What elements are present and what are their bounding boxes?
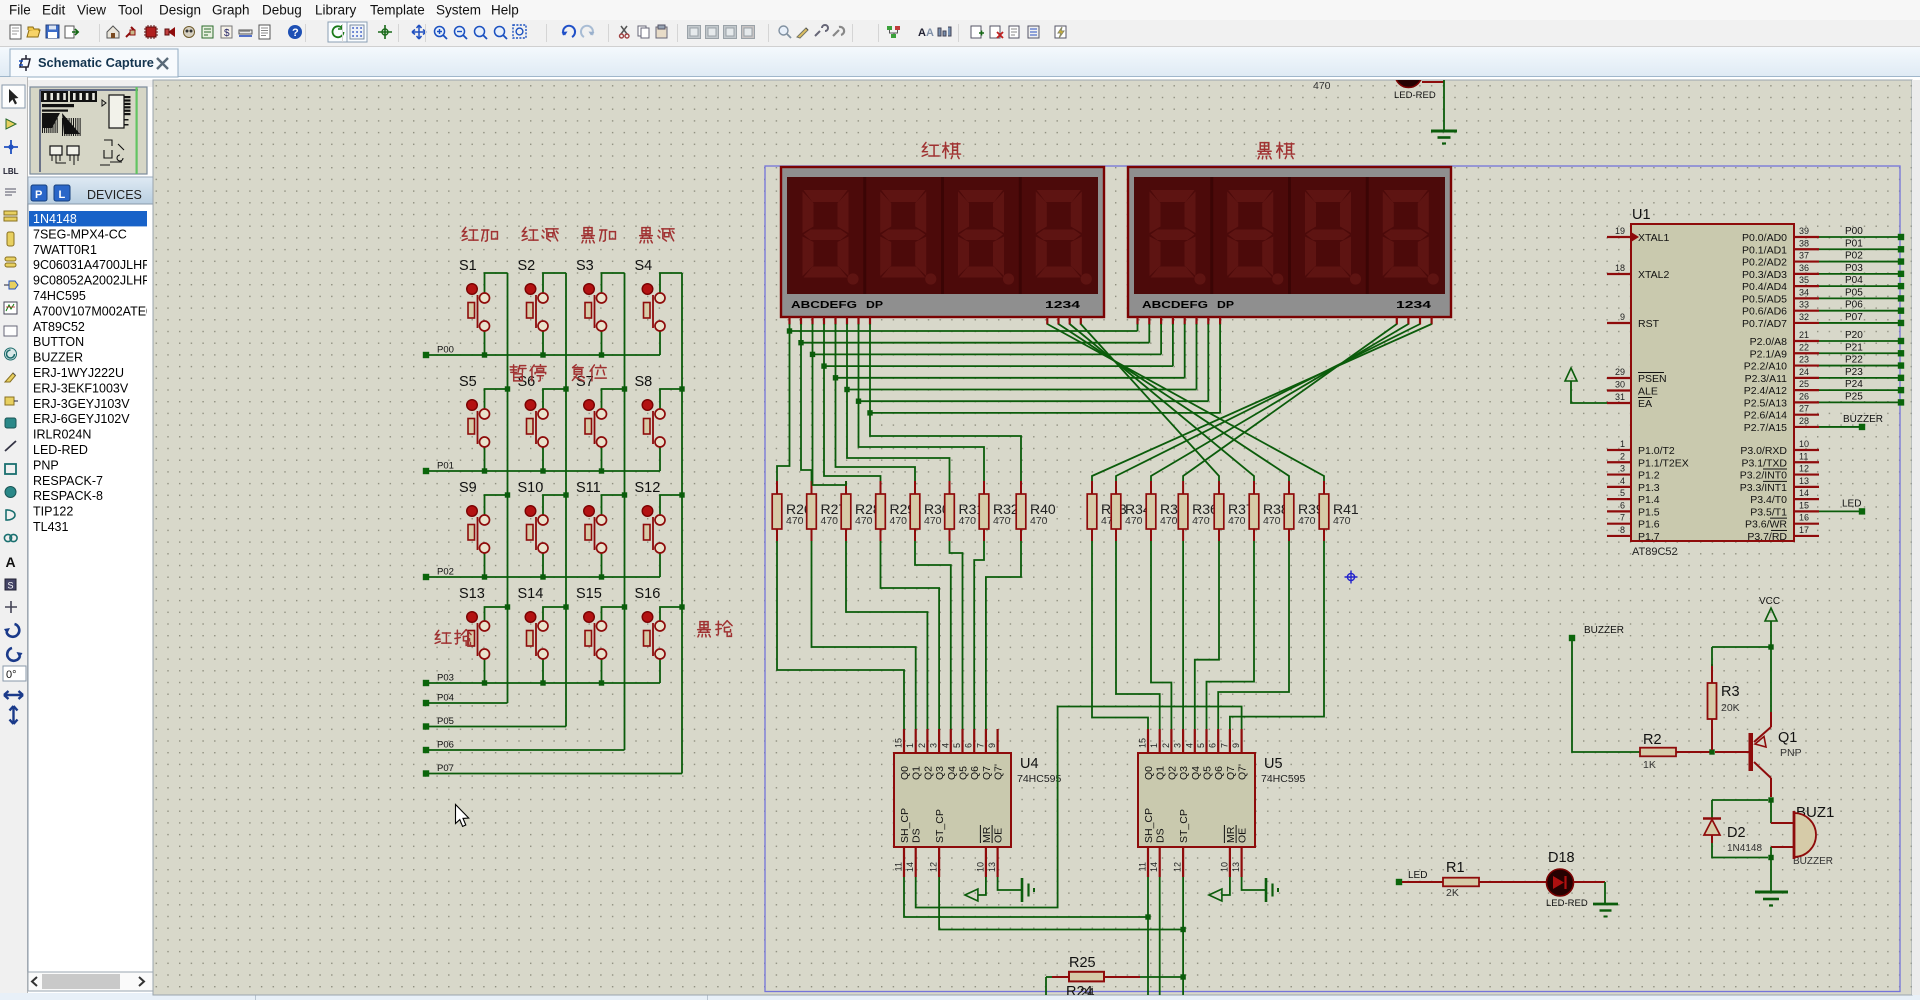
svg-text:14: 14 xyxy=(905,862,915,872)
svg-text:470: 470 xyxy=(1030,515,1048,527)
svg-text:9: 9 xyxy=(987,743,997,748)
svg-text:TIP122: TIP122 xyxy=(33,505,73,519)
svg-text:31: 31 xyxy=(1615,392,1625,402)
svg-text:20K: 20K xyxy=(1721,702,1740,714)
svg-text:P2.4/A12: P2.4/A12 xyxy=(1744,385,1787,397)
svg-text:8: 8 xyxy=(1620,525,1625,535)
svg-text:470: 470 xyxy=(1298,515,1316,527)
svg-text:OE: OE xyxy=(1237,828,1249,843)
svg-text:18: 18 xyxy=(1615,263,1625,273)
svg-text:S12: S12 xyxy=(635,480,661,496)
svg-text:74HC595: 74HC595 xyxy=(1017,773,1062,785)
svg-text:12: 12 xyxy=(1173,862,1183,872)
svg-text:S3: S3 xyxy=(576,258,594,274)
svg-text:Q1: Q1 xyxy=(1778,730,1797,746)
svg-text:13: 13 xyxy=(1231,862,1241,872)
svg-text:11: 11 xyxy=(894,862,904,871)
svg-text:DP: DP xyxy=(866,300,883,311)
svg-text:S5: S5 xyxy=(459,374,477,390)
svg-text:A700V107M002ATE028: A700V107M002ATE028 xyxy=(33,304,167,318)
svg-text:IRLR024N: IRLR024N xyxy=(33,428,91,442)
svg-text:P04: P04 xyxy=(437,693,454,704)
svg-text:1: 1 xyxy=(1149,743,1159,748)
svg-text:P02: P02 xyxy=(437,567,454,578)
svg-text:15: 15 xyxy=(1799,500,1809,510)
svg-text:P3.3/INT1: P3.3/INT1 xyxy=(1740,482,1787,494)
svg-text:BUZZER: BUZZER xyxy=(1843,414,1883,425)
svg-text:Schematic Capture: Schematic Capture xyxy=(38,55,154,70)
svg-text:ST_CP: ST_CP xyxy=(934,809,946,843)
svg-text:A: A xyxy=(926,27,934,39)
svg-text:1234: 1234 xyxy=(1045,300,1081,311)
svg-text:BUZZER: BUZZER xyxy=(1793,856,1833,867)
svg-text:AT89C52: AT89C52 xyxy=(33,320,85,334)
svg-text:Tool: Tool xyxy=(118,3,143,18)
svg-text:38: 38 xyxy=(1799,238,1809,248)
svg-text:SH_CP: SH_CP xyxy=(1143,808,1155,843)
svg-text:1: 1 xyxy=(905,743,915,748)
svg-text:33: 33 xyxy=(1799,300,1809,310)
svg-text:Q7: Q7 xyxy=(981,766,993,780)
svg-text:Q4: Q4 xyxy=(1190,766,1202,780)
svg-text:LED-RED: LED-RED xyxy=(1394,90,1436,101)
svg-text:S15: S15 xyxy=(576,586,602,602)
svg-text:P0.7/AD7: P0.7/AD7 xyxy=(1742,318,1787,330)
svg-text:P24: P24 xyxy=(1845,379,1863,390)
svg-text:MR: MR xyxy=(981,826,993,843)
svg-text:OE: OE xyxy=(993,828,1005,843)
svg-text:2K: 2K xyxy=(1446,887,1459,899)
svg-text:Q7': Q7' xyxy=(993,764,1005,780)
svg-text:Design: Design xyxy=(159,3,201,18)
svg-text:S11: S11 xyxy=(576,480,601,496)
svg-text:6: 6 xyxy=(1208,743,1218,748)
svg-text:470: 470 xyxy=(1125,515,1143,527)
svg-text:P01: P01 xyxy=(437,461,454,472)
svg-text:P3.6/WR: P3.6/WR xyxy=(1745,519,1787,531)
svg-text:AT89C52: AT89C52 xyxy=(1632,546,1678,558)
svg-text:11: 11 xyxy=(1138,862,1148,871)
svg-text:P0.2/AD2: P0.2/AD2 xyxy=(1742,257,1787,269)
svg-text:P06: P06 xyxy=(437,740,454,751)
svg-text:LED-RED: LED-RED xyxy=(33,443,88,457)
svg-text:R1: R1 xyxy=(1446,860,1465,876)
svg-text:Q6: Q6 xyxy=(969,766,981,780)
svg-text:Q5: Q5 xyxy=(1202,766,1214,780)
svg-text:6: 6 xyxy=(1620,500,1625,510)
svg-text:S7: S7 xyxy=(576,374,594,390)
svg-text:Q0: Q0 xyxy=(1143,766,1155,780)
svg-text:P20: P20 xyxy=(1845,330,1863,341)
svg-text:Q5: Q5 xyxy=(958,766,970,780)
svg-text:P3.5/T1: P3.5/T1 xyxy=(1750,506,1787,518)
svg-text:P07: P07 xyxy=(437,763,454,774)
svg-text:LED-RED: LED-RED xyxy=(1546,898,1588,909)
svg-text:U5: U5 xyxy=(1264,756,1283,772)
svg-text:P0.6/AD6: P0.6/AD6 xyxy=(1742,306,1787,318)
svg-text:Q1: Q1 xyxy=(911,766,923,780)
svg-text:Q2: Q2 xyxy=(1166,766,1178,780)
svg-text:34: 34 xyxy=(1799,287,1809,297)
svg-text:RESPACK-8: RESPACK-8 xyxy=(33,489,103,503)
svg-text:ALE: ALE xyxy=(1638,386,1658,398)
svg-text:D18: D18 xyxy=(1548,850,1575,866)
svg-text:VCC: VCC xyxy=(1759,596,1780,607)
svg-text:39: 39 xyxy=(1799,226,1809,236)
svg-text:5: 5 xyxy=(952,743,962,748)
svg-text:P3.2/INT0: P3.2/INT0 xyxy=(1740,470,1787,482)
svg-text:4: 4 xyxy=(1620,476,1625,486)
svg-text:3: 3 xyxy=(1620,464,1625,474)
svg-text:12: 12 xyxy=(1799,464,1809,474)
svg-text:470: 470 xyxy=(924,515,942,527)
svg-text:P2.3/A11: P2.3/A11 xyxy=(1745,373,1788,385)
svg-text:?: ? xyxy=(292,27,299,39)
svg-text:Q6: Q6 xyxy=(1213,766,1225,780)
svg-text:P2.6/A14: P2.6/A14 xyxy=(1744,410,1787,422)
svg-text:23: 23 xyxy=(1799,355,1809,365)
svg-text:PNP: PNP xyxy=(1780,747,1802,759)
svg-text:Q0: Q0 xyxy=(899,766,911,780)
svg-text:14: 14 xyxy=(1149,862,1159,872)
svg-text:P0.4/AD4: P0.4/AD4 xyxy=(1742,281,1787,293)
svg-text:S9: S9 xyxy=(459,480,477,496)
svg-text:470: 470 xyxy=(1333,515,1351,527)
svg-text:S14: S14 xyxy=(518,586,544,602)
svg-text:74HC595: 74HC595 xyxy=(1261,773,1306,785)
svg-text:P0.5/AD5: P0.5/AD5 xyxy=(1742,293,1787,305)
svg-text:26: 26 xyxy=(1799,391,1809,401)
svg-text:S1: S1 xyxy=(459,258,477,274)
svg-text:RST: RST xyxy=(1638,318,1660,330)
svg-text:S16: S16 xyxy=(635,586,661,602)
svg-text:P21: P21 xyxy=(1845,342,1863,353)
svg-text:DP: DP xyxy=(1217,300,1234,311)
svg-text:P04: P04 xyxy=(1845,275,1863,286)
svg-text:L: L xyxy=(59,189,66,201)
svg-text:PNP: PNP xyxy=(33,458,59,472)
svg-text:U1: U1 xyxy=(1632,207,1651,223)
svg-text:9C08052A2002JLHFT: 9C08052A2002JLHFT xyxy=(33,274,158,288)
svg-text:P02: P02 xyxy=(1845,251,1863,262)
svg-text:R2: R2 xyxy=(1643,732,1662,748)
svg-text:32: 32 xyxy=(1799,312,1809,322)
svg-text:P3.4/T0: P3.4/T0 xyxy=(1750,494,1787,506)
svg-text:P00: P00 xyxy=(1845,226,1863,237)
svg-text:P01: P01 xyxy=(1845,238,1863,249)
svg-text:3: 3 xyxy=(1173,743,1183,748)
svg-text:2: 2 xyxy=(917,743,927,748)
svg-text:XTAL1: XTAL1 xyxy=(1638,232,1669,244)
svg-text:14: 14 xyxy=(1799,488,1809,498)
svg-text:P0.1/AD1: P0.1/AD1 xyxy=(1742,244,1787,256)
svg-text:Q4: Q4 xyxy=(946,766,958,780)
svg-text:P2.2/A10: P2.2/A10 xyxy=(1744,361,1787,373)
svg-text:S2: S2 xyxy=(518,258,536,274)
svg-text:R3: R3 xyxy=(1721,684,1740,700)
svg-text:BUTTON: BUTTON xyxy=(33,335,84,349)
svg-text:16: 16 xyxy=(1799,513,1809,523)
svg-text:Help: Help xyxy=(491,3,519,18)
svg-text:P05: P05 xyxy=(437,716,454,727)
svg-text:P03: P03 xyxy=(437,673,454,684)
svg-text:Graph: Graph xyxy=(212,3,250,18)
svg-text:29: 29 xyxy=(1615,367,1625,377)
svg-text:LED: LED xyxy=(1842,498,1861,509)
svg-text:9: 9 xyxy=(1231,743,1241,748)
svg-text:P1.4: P1.4 xyxy=(1638,494,1660,506)
svg-text:15: 15 xyxy=(1138,738,1148,748)
svg-text:P2.5/A13: P2.5/A13 xyxy=(1744,397,1787,409)
svg-text:ERJ-6GEYJ102V: ERJ-6GEYJ102V xyxy=(33,412,130,426)
svg-text:DS: DS xyxy=(911,828,923,843)
svg-text:Q2: Q2 xyxy=(922,766,934,780)
svg-text:P1.6: P1.6 xyxy=(1638,519,1660,531)
svg-text:P00: P00 xyxy=(437,345,454,356)
svg-text:P1.0/T2: P1.0/T2 xyxy=(1638,445,1675,457)
svg-text:S10: S10 xyxy=(518,480,544,496)
svg-text:ERJ-3EKF1003V: ERJ-3EKF1003V xyxy=(33,381,129,395)
svg-text:9: 9 xyxy=(1620,312,1625,322)
svg-text:470: 470 xyxy=(786,515,804,527)
svg-text:37: 37 xyxy=(1799,251,1809,261)
svg-text:470: 470 xyxy=(890,515,908,527)
svg-text:P1.1/T2EX: P1.1/T2EX xyxy=(1638,457,1689,469)
svg-text:2: 2 xyxy=(1620,451,1625,461)
svg-text:Q1: Q1 xyxy=(1155,766,1167,780)
svg-text:Q3: Q3 xyxy=(1178,766,1190,780)
svg-text:30: 30 xyxy=(1615,380,1625,390)
svg-text:7: 7 xyxy=(1219,743,1229,748)
svg-text:D2: D2 xyxy=(1727,825,1746,841)
svg-text:View: View xyxy=(77,3,106,18)
svg-text:470: 470 xyxy=(855,515,873,527)
svg-text:P06: P06 xyxy=(1845,300,1863,311)
svg-text:ST_CP: ST_CP xyxy=(1178,809,1190,843)
svg-text:27: 27 xyxy=(1799,404,1809,414)
svg-text:7SEG-MPX4-CC: 7SEG-MPX4-CC xyxy=(33,227,127,241)
svg-text:P2.0/A8: P2.0/A8 xyxy=(1750,336,1788,348)
svg-text:S13: S13 xyxy=(459,586,485,602)
svg-text:P1.2: P1.2 xyxy=(1638,470,1660,482)
svg-text:Q7: Q7 xyxy=(1225,766,1237,780)
svg-text:15: 15 xyxy=(894,738,904,748)
svg-text:Debug: Debug xyxy=(262,3,302,18)
svg-text:10: 10 xyxy=(1799,439,1809,449)
svg-text:470: 470 xyxy=(1160,515,1178,527)
svg-text:22: 22 xyxy=(1799,342,1809,352)
svg-text:A: A xyxy=(6,554,16,570)
svg-text:File: File xyxy=(9,3,31,18)
svg-text:6: 6 xyxy=(964,743,974,748)
svg-text:LED: LED xyxy=(1408,870,1427,881)
svg-text:P3.1/TXD: P3.1/TXD xyxy=(1741,457,1787,469)
svg-text:0°: 0° xyxy=(6,669,17,681)
svg-text:P1.5: P1.5 xyxy=(1638,506,1660,518)
svg-text:S4: S4 xyxy=(635,258,653,274)
svg-text:MR: MR xyxy=(1225,826,1237,843)
svg-text:3: 3 xyxy=(929,743,939,748)
svg-text:17: 17 xyxy=(1799,525,1809,535)
svg-text:S8: S8 xyxy=(635,374,653,390)
svg-text:4: 4 xyxy=(1184,743,1194,748)
svg-text:EA: EA xyxy=(1638,398,1652,410)
svg-text:470: 470 xyxy=(1263,515,1281,527)
svg-text:P22: P22 xyxy=(1845,355,1863,366)
svg-text:1: 1 xyxy=(1620,439,1625,449)
svg-text:10: 10 xyxy=(975,862,985,872)
svg-text:BUZZER: BUZZER xyxy=(1584,625,1624,636)
svg-text:P3.0/RXD: P3.0/RXD xyxy=(1740,445,1787,457)
svg-text:1234: 1234 xyxy=(1396,300,1432,311)
svg-text:Template: Template xyxy=(370,3,425,18)
svg-text:12: 12 xyxy=(929,862,939,872)
svg-text:P1.3: P1.3 xyxy=(1638,482,1660,494)
svg-text:7: 7 xyxy=(1620,513,1625,523)
svg-text:P2.7/A15: P2.7/A15 xyxy=(1744,422,1787,434)
svg-text:P25: P25 xyxy=(1845,391,1863,402)
svg-text:S: S xyxy=(8,581,14,591)
svg-text:11: 11 xyxy=(1799,451,1808,461)
svg-text:P05: P05 xyxy=(1845,287,1863,298)
svg-text:ERJ-3GEYJ103V: ERJ-3GEYJ103V xyxy=(33,397,130,411)
svg-text:ERJ-1WYJ222U: ERJ-1WYJ222U xyxy=(33,366,124,380)
svg-text:$: $ xyxy=(224,28,230,39)
svg-text:19: 19 xyxy=(1615,226,1625,236)
svg-text:P1.7: P1.7 xyxy=(1638,531,1660,543)
svg-text:P2.1/A9: P2.1/A9 xyxy=(1750,348,1788,360)
svg-text:Q7': Q7' xyxy=(1237,764,1249,780)
svg-text:21: 21 xyxy=(1799,330,1809,340)
svg-text:25: 25 xyxy=(1799,379,1809,389)
svg-text:1N4148: 1N4148 xyxy=(1727,843,1762,854)
svg-text:P23: P23 xyxy=(1845,367,1863,378)
svg-text:System: System xyxy=(436,3,481,18)
svg-text:5: 5 xyxy=(1620,488,1625,498)
svg-text:ABCDEFG: ABCDEFG xyxy=(791,300,857,311)
svg-text:7: 7 xyxy=(975,743,985,748)
svg-text:9C06031A4700JLHFT: 9C06031A4700JLHFT xyxy=(33,258,158,272)
svg-text:470: 470 xyxy=(1228,515,1246,527)
svg-text:470: 470 xyxy=(993,515,1011,527)
svg-text:P0.3/AD3: P0.3/AD3 xyxy=(1742,269,1787,281)
svg-text:ABCDEFG: ABCDEFG xyxy=(1142,300,1208,311)
svg-text:P03: P03 xyxy=(1845,263,1863,274)
svg-text:R25: R25 xyxy=(1069,955,1096,971)
svg-text:7WATT0R1: 7WATT0R1 xyxy=(33,243,97,257)
svg-text:470: 470 xyxy=(959,515,977,527)
svg-text:Library: Library xyxy=(315,3,357,18)
svg-text:5: 5 xyxy=(1196,743,1206,748)
svg-text:13: 13 xyxy=(1799,476,1809,486)
svg-text:4: 4 xyxy=(940,743,950,748)
svg-text:2: 2 xyxy=(1161,743,1171,748)
svg-text:LBL: LBL xyxy=(3,167,19,176)
svg-text:P: P xyxy=(35,189,42,201)
svg-text:74HC595: 74HC595 xyxy=(33,289,86,303)
svg-text:DS: DS xyxy=(1155,828,1167,843)
svg-text:10: 10 xyxy=(1219,862,1229,872)
svg-text:Edit: Edit xyxy=(42,3,66,18)
svg-text:DEVICES: DEVICES xyxy=(87,188,142,202)
svg-text:470: 470 xyxy=(1313,80,1331,92)
svg-text:XTAL2: XTAL2 xyxy=(1638,269,1669,281)
svg-text:A: A xyxy=(918,27,926,39)
svg-text:470: 470 xyxy=(821,515,839,527)
svg-text:36: 36 xyxy=(1799,263,1809,273)
svg-text:PSEN: PSEN xyxy=(1638,373,1667,385)
svg-text:P07: P07 xyxy=(1845,312,1863,323)
svg-text:470: 470 xyxy=(1192,515,1210,527)
svg-text:BUZZER: BUZZER xyxy=(33,351,83,365)
svg-text:1N4148: 1N4148 xyxy=(33,212,77,226)
svg-text:24: 24 xyxy=(1799,367,1809,377)
svg-text:13: 13 xyxy=(987,862,997,872)
svg-text:P3.7/RD: P3.7/RD xyxy=(1747,531,1787,543)
svg-text:28: 28 xyxy=(1799,416,1809,426)
svg-text:1K: 1K xyxy=(1643,759,1656,771)
svg-text:35: 35 xyxy=(1799,275,1809,285)
svg-text:TL431: TL431 xyxy=(33,520,68,534)
svg-text:Q3: Q3 xyxy=(934,766,946,780)
svg-text:U4: U4 xyxy=(1020,756,1039,772)
svg-text:P0.0/AD0: P0.0/AD0 xyxy=(1742,232,1787,244)
svg-text:SH_CP: SH_CP xyxy=(899,808,911,843)
svg-text:RESPACK-7: RESPACK-7 xyxy=(33,474,103,488)
